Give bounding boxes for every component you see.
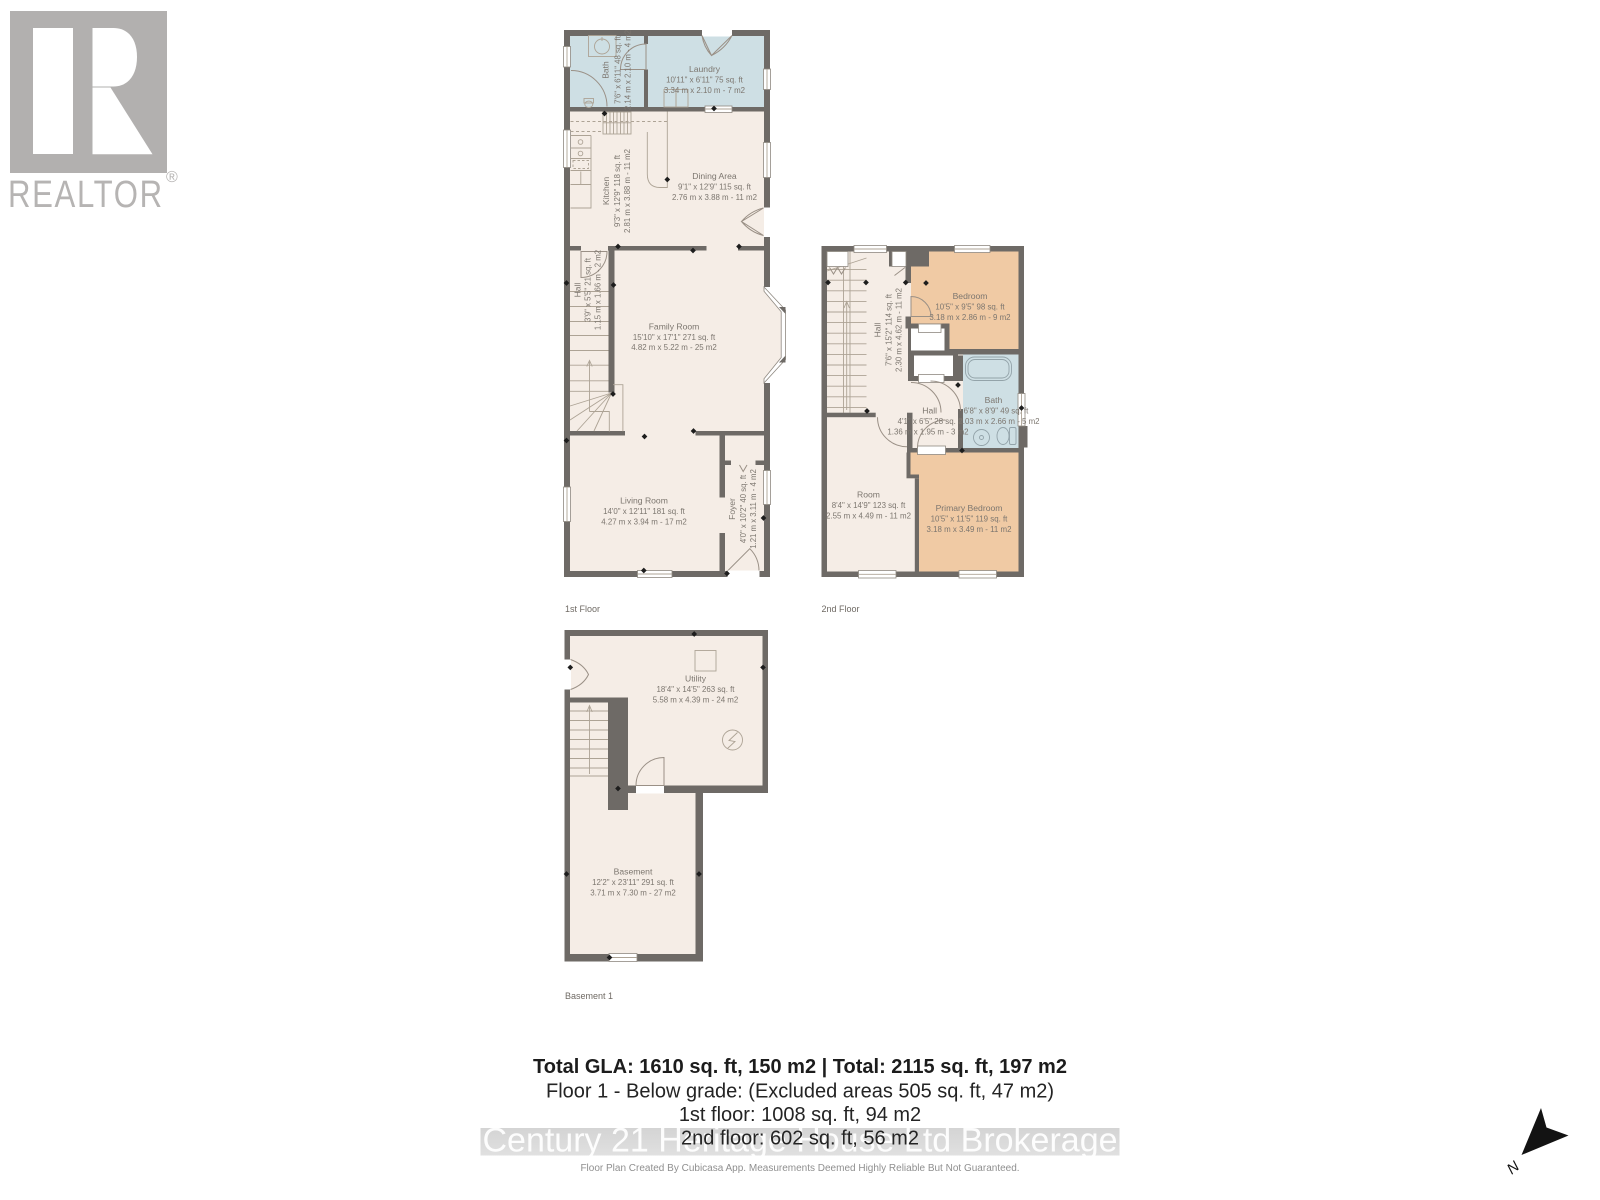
svg-text:REALTOR: REALTOR — [8, 174, 164, 216]
svg-text:Floor 1 - Below grade: (Exclud: Floor 1 - Below grade: (Excluded areas 5… — [546, 1081, 1054, 1103]
svg-text:2.76 m x 3.88 m - 11 m2: 2.76 m x 3.88 m - 11 m2 — [672, 193, 757, 202]
svg-text:4.27 m x 3.94 m - 17 m2: 4.27 m x 3.94 m - 17 m2 — [601, 518, 687, 527]
svg-text:9'3" x 12'9" 118 sq. ft: 9'3" x 12'9" 118 sq. ft — [613, 154, 622, 227]
svg-text:1st Floor: 1st Floor — [565, 604, 600, 614]
svg-text:7'6" x 15'2" 114 sq. ft: 7'6" x 15'2" 114 sq. ft — [885, 293, 894, 366]
svg-text:Hall: Hall — [573, 283, 583, 298]
svg-text:9'1" x 12'9" 115 sq. ft: 9'1" x 12'9" 115 sq. ft — [678, 182, 752, 191]
svg-text:2nd floor: 602 sq. ft, 56 m2: 2nd floor: 602 sq. ft, 56 m2 — [681, 1128, 919, 1150]
svg-text:2nd Floor: 2nd Floor — [822, 604, 860, 614]
svg-text:Bedroom: Bedroom — [953, 291, 988, 301]
svg-text:12'2" x 23'11" 291 sq. ft: 12'2" x 23'11" 291 sq. ft — [592, 878, 675, 887]
svg-text:2.03 m x 2.66 m - 5 m2: 2.03 m x 2.66 m - 5 m2 — [958, 417, 1039, 426]
svg-text:3'9" x 5'5" 21 sq. ft: 3'9" x 5'5" 21 sq. ft — [584, 257, 593, 322]
svg-text:Utility: Utility — [685, 674, 707, 684]
svg-text:6'8" x 8'9" 49 sq. ft: 6'8" x 8'9" 49 sq. ft — [964, 406, 1030, 415]
svg-text:10'5" x 11'5" 119 sq. ft: 10'5" x 11'5" 119 sq. ft — [931, 515, 1009, 524]
svg-text:18'4" x 14'5" 263 sq. ft: 18'4" x 14'5" 263 sq. ft — [657, 685, 736, 694]
svg-text:4'1" x 6'5" 28 sq. ft: 4'1" x 6'5" 28 sq. ft — [898, 417, 964, 426]
svg-text:Hall: Hall — [873, 323, 883, 338]
svg-text:4.82 m x 5.22 m - 25 m2: 4.82 m x 5.22 m - 25 m2 — [631, 343, 717, 352]
svg-text:Living Room: Living Room — [620, 496, 668, 506]
svg-text:1.36 m x 1.95 m - 3 m2: 1.36 m x 1.95 m - 3 m2 — [887, 427, 968, 436]
svg-text:10'11" x 6'11" 75 sq. ft: 10'11" x 6'11" 75 sq. ft — [666, 75, 744, 84]
svg-text:Bath: Bath — [601, 61, 611, 79]
svg-text:2.14 m x 2.10 m - 4 m2: 2.14 m x 2.10 m - 4 m2 — [624, 30, 633, 110]
svg-text:®: ® — [166, 169, 178, 186]
svg-text:Laundry: Laundry — [689, 64, 721, 74]
svg-text:15'10" x 17'1" 271 sq. ft: 15'10" x 17'1" 271 sq. ft — [633, 333, 716, 342]
svg-text:Room: Room — [857, 490, 880, 500]
svg-text:Basement 1: Basement 1 — [565, 991, 613, 1001]
svg-text:3.18 m x 3.49 m - 11 m2: 3.18 m x 3.49 m - 11 m2 — [927, 525, 1012, 534]
svg-text:14'0" x 12'11" 181 sq. ft: 14'0" x 12'11" 181 sq. ft — [603, 507, 686, 516]
svg-text:3.71 m x 7.30 m - 27 m2: 3.71 m x 7.30 m - 27 m2 — [590, 888, 676, 897]
svg-text:Dining Area: Dining Area — [692, 171, 737, 181]
svg-text:2.81 m x 3.88 m - 11 m2: 2.81 m x 3.88 m - 11 m2 — [623, 149, 632, 233]
svg-text:Foyer: Foyer — [727, 498, 737, 520]
svg-text:Hall: Hall — [922, 406, 937, 416]
svg-text:Kitchen: Kitchen — [601, 177, 611, 206]
svg-text:4'0" x 10'2" 40 sq. ft: 4'0" x 10'2" 40 sq. ft — [739, 474, 748, 543]
svg-text:5.58 m x 4.39 m - 24 m2: 5.58 m x 4.39 m - 24 m2 — [653, 695, 739, 704]
svg-text:1.15 m x 1.66 m - 2 m2: 1.15 m x 1.66 m - 2 m2 — [594, 250, 603, 330]
svg-text:Total GLA: 1610 sq. ft, 150 m2: Total GLA: 1610 sq. ft, 150 m2 | Total: … — [533, 1056, 1067, 1078]
svg-text:3.18 m x 2.86 m - 9 m2: 3.18 m x 2.86 m - 9 m2 — [929, 313, 1010, 322]
svg-text:Basement: Basement — [614, 867, 653, 877]
svg-text:Family Room: Family Room — [649, 321, 700, 331]
svg-text:3.34 m x 2.10 m - 7 m2: 3.34 m x 2.10 m - 7 m2 — [664, 86, 745, 95]
svg-text:1.21 m x 3.11 m - 4 m2: 1.21 m x 3.11 m - 4 m2 — [749, 469, 758, 549]
svg-text:Floor Plan Created By Cubicasa: Floor Plan Created By Cubicasa App. Meas… — [580, 1163, 1019, 1174]
svg-text:10'5" x 9'5" 98 sq. ft: 10'5" x 9'5" 98 sq. ft — [935, 302, 1005, 311]
svg-text:7'6" x 6'11" 48 sq. ft: 7'6" x 6'11" 48 sq. ft — [614, 35, 623, 104]
svg-text:8'4" x 14'9" 123 sq. ft: 8'4" x 14'9" 123 sq. ft — [832, 501, 906, 510]
svg-text:2.30 m x 4.62 m - 11 m2: 2.30 m x 4.62 m - 11 m2 — [895, 288, 904, 372]
svg-text:2.55 m x 4.49 m - 11 m2: 2.55 m x 4.49 m - 11 m2 — [826, 511, 911, 520]
svg-text:Primary Bedroom: Primary Bedroom — [936, 503, 1003, 513]
svg-text:Bath: Bath — [985, 395, 1003, 405]
